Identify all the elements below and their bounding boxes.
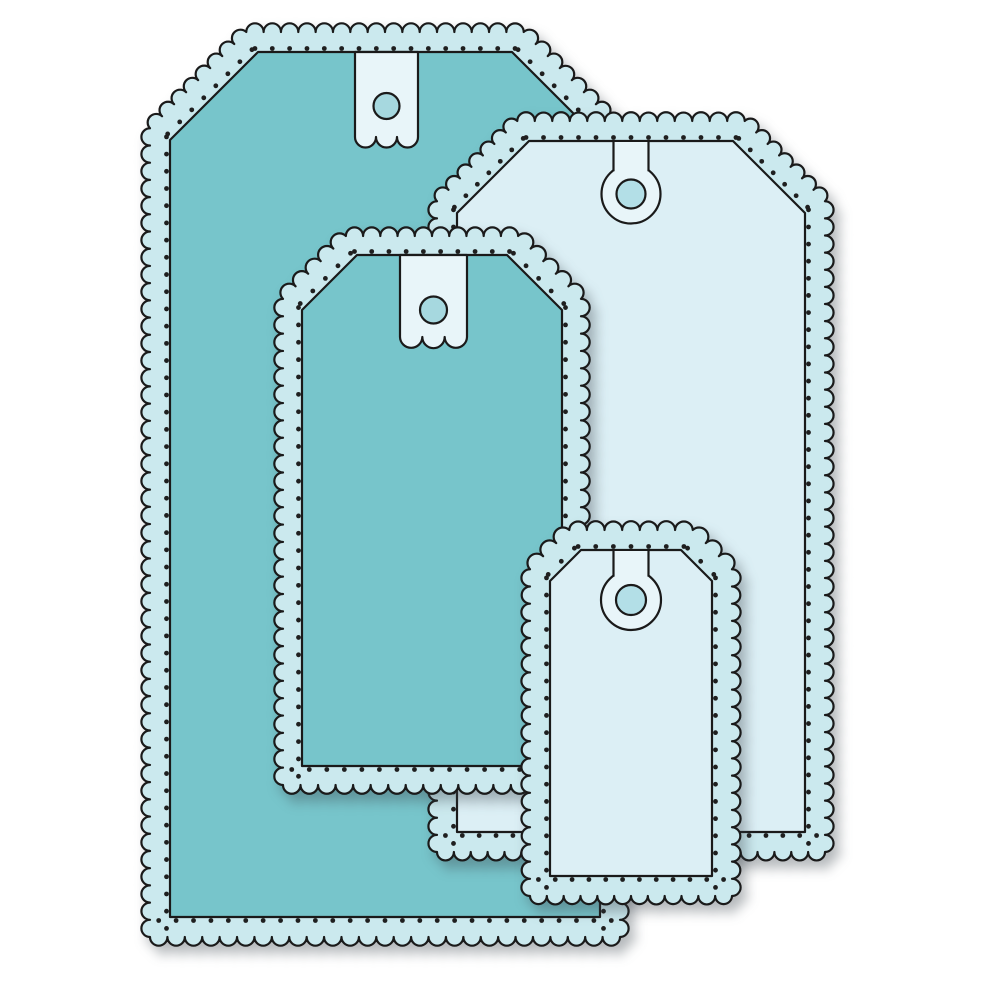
product-illustration-canvas <box>0 0 1000 1000</box>
tag-small-light <box>521 521 740 904</box>
scalloped-tags-illustration <box>0 0 1000 1000</box>
hang-slot <box>614 142 649 171</box>
string-hole <box>617 180 646 209</box>
string-hole <box>374 93 400 119</box>
hang-slot <box>614 551 649 577</box>
string-hole <box>616 585 646 615</box>
string-hole <box>420 297 447 324</box>
